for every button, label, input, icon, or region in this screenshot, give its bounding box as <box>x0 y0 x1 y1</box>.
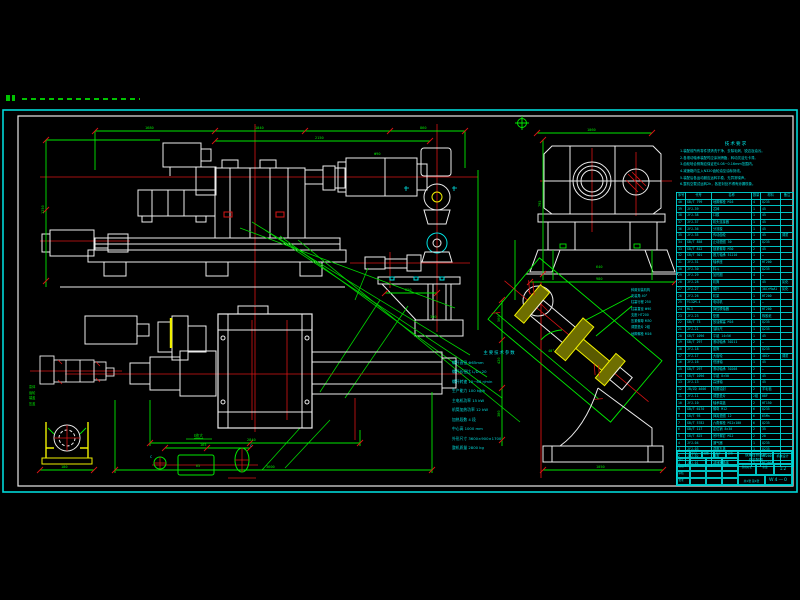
bom-row: 15GB/T 297滚动轴承 302082— <box>677 366 794 373</box>
bom-cell: — <box>761 253 781 260</box>
bom-header-cell: 名称 <box>712 193 752 200</box>
bom-cell: JYJ-29 <box>686 273 712 280</box>
title-block-cell: 处数 <box>702 451 714 458</box>
bom-row: 4JYJ-04通气器1Q235 <box>677 440 794 447</box>
svg-text:40°: 40° <box>548 349 555 353</box>
spec-line: 螺杆直径 Φ65mm <box>452 358 547 367</box>
spec-line: 加热段数 4 段 <box>452 415 547 424</box>
bom-row: 19GB/T 297滚动轴承 302112— <box>677 340 794 347</box>
bom-cell <box>781 400 794 407</box>
bom-row: 23JYJ-23垫圈1橡胶纸 <box>677 313 794 320</box>
bom-cell: JYJ-13 <box>686 380 712 387</box>
bom-cell <box>781 246 794 253</box>
bom-cell: 定位销 8×30 <box>712 427 752 434</box>
bom-cell: 低速轴 <box>712 360 752 367</box>
bom-row: 35JYJ-35传动齿轮145调质 <box>677 233 794 240</box>
company-name: 机械设计 <box>773 451 792 464</box>
svg-text:560: 560 <box>497 316 501 323</box>
svg-text:860: 860 <box>420 126 427 130</box>
bom-cell: GB/T 73 <box>686 320 712 327</box>
bom-cell: 通气器 <box>712 440 752 447</box>
bom-cell: 1 <box>752 206 761 213</box>
bom-cell: Q235 <box>761 420 781 427</box>
bom-cell: 21 <box>677 326 686 333</box>
bom-cell: 11 <box>677 393 686 400</box>
bom-cell: 45 <box>761 226 781 233</box>
sheet-count: 共1张 第1张 <box>738 475 765 485</box>
bom-row: 40GB/T 799地脚螺栓 M164Q235 <box>677 199 794 206</box>
callout-lines: 斜置安装机构安装角 40°柱塞行程 250柱塞直径 Φ90支座 HT200压紧螺… <box>631 287 673 337</box>
bom-row: 13JYJ-13高速轴145 <box>677 380 794 387</box>
bom-cell: 1 <box>752 226 761 233</box>
drawing-number: W4—0 <box>765 475 792 485</box>
machine-base <box>60 238 346 287</box>
bom-row: 32GB/T 301推力轴承 512101— <box>677 253 794 260</box>
bom-cell: GB/T 117 <box>686 427 712 434</box>
bom-cell: JYJ-18 <box>686 346 712 353</box>
dim-ticks <box>43 128 468 296</box>
bom-cell: 25 <box>677 300 686 307</box>
title-block-cell: 标记 <box>690 451 702 458</box>
spec-line: 螺杆长径比 L/D=20 <box>452 367 547 376</box>
bom-cell <box>781 213 794 220</box>
bom-cell: GB/T 825 <box>686 433 712 440</box>
bom-cell: 调质 <box>781 353 794 360</box>
bom-cell: JYJ-10 <box>686 400 712 407</box>
bom-cell: JYJ-17 <box>686 353 712 360</box>
bom-row: 33GB/T 812锁紧螺母 M30245 <box>677 246 794 253</box>
svg-text:1250: 1250 <box>41 205 45 214</box>
bom-cell: 弹簧垫圈 12 <box>712 413 752 420</box>
bom-cell <box>781 340 794 347</box>
bom-cell: 套筒 <box>712 346 752 353</box>
stray-green-mark <box>6 95 10 101</box>
bom-cell: JYJ-04 <box>686 440 712 447</box>
detail-view-label: Ⅰ放大 <box>194 432 203 438</box>
svg-text:2840: 2840 <box>247 438 256 442</box>
gearbox <box>138 160 305 238</box>
bom-cell: 35 <box>761 427 781 434</box>
bom-cell: 高速轴 <box>712 380 752 387</box>
bom-cell: 弹性联轴器 <box>712 306 752 313</box>
bom-cell: JYJ-30 <box>686 266 712 273</box>
bom-cell: — <box>761 366 781 373</box>
bom-cell: 45 <box>761 219 781 226</box>
bom-cell: 滚动轴承 30211 <box>712 340 752 347</box>
bom-cell: 12 <box>677 386 686 393</box>
channel-dim: 65 <box>196 464 200 468</box>
svg-text:1050: 1050 <box>596 465 605 469</box>
bom-cell: Y132M-4 <box>686 300 712 307</box>
bom-cell: 13 <box>677 380 686 387</box>
bom-cell: Q235 <box>761 326 781 333</box>
bom-cell: JYJ-38 <box>686 213 712 220</box>
bom-cell: 45 <box>761 360 781 367</box>
bom-cell <box>781 259 794 266</box>
bom-cell: 1 <box>752 266 761 273</box>
bom-cell: 2 <box>752 246 761 253</box>
sig-header-row: 标记处数签字日期 <box>677 451 738 458</box>
bom-cell <box>781 346 794 353</box>
bom-cell <box>781 266 794 273</box>
vertical-feed-device <box>365 148 463 336</box>
notes-list: 1.装配前所有零件须清洗干净，去除毛刺、锐边及油污。2.各滚动轴承装配时应涂润滑… <box>680 148 792 188</box>
bom-cell: 六角螺栓 M12×100 <box>712 420 752 427</box>
bom-cell <box>781 206 794 213</box>
bom-cell: Q235 <box>761 199 781 206</box>
bom-row: 17JYJ-17大齿轮140Cr调质 <box>677 353 794 360</box>
title-block-cell <box>706 465 722 472</box>
part-label-list: 泵体齿轮端盖压盖 <box>29 385 59 407</box>
bom-cell: 电动机 <box>712 300 752 307</box>
weight-label: 重量 <box>756 464 774 475</box>
part-label: 压盖 <box>29 402 59 408</box>
dimensions-view3 <box>115 392 432 473</box>
bom-row: 31JYJ-31轴承座2HT200 <box>677 259 794 266</box>
bom-row: 38JYJ-38口模145 <box>677 213 794 220</box>
bom-row: 25Y132M-4电动机1— <box>677 300 794 307</box>
bom-cell: 2组 <box>752 393 761 400</box>
bom-row: 36JYJ-36分流梭145 <box>677 226 794 233</box>
title-block-cell <box>706 471 722 478</box>
title-block-cell: 批准 <box>677 478 690 485</box>
bom-cell <box>781 333 794 340</box>
spec-line: 生产能力 100 kg/h <box>452 386 547 395</box>
bom-cell <box>781 366 794 373</box>
sig-row: 校核 <box>677 465 738 472</box>
bom-cell: JYJ-23 <box>686 313 712 320</box>
bom-cell: GB/T 858 <box>686 239 712 246</box>
bom-cell: 1 <box>752 373 761 380</box>
bom-cell: 止动垫圈 30 <box>712 239 752 246</box>
bom-cell: — <box>761 273 781 280</box>
bom-cell: 20 <box>761 433 781 440</box>
bom-cell <box>781 306 794 313</box>
bom-cell: 1 <box>752 279 761 286</box>
bom-cell: 分流梭 <box>712 226 752 233</box>
spec-lines: 螺杆直径 Φ65mm螺杆长径比 L/D=20螺杆转速 10~60 r/min生产… <box>452 358 547 453</box>
bom-cell: 滚动轴承 30208 <box>712 366 752 373</box>
bom-row: 7GB/T 5782六角螺栓 M12×1006Q235 <box>677 420 794 427</box>
bom-cell: 45 <box>761 213 781 220</box>
bom-row: 6GB/T 117定位销 8×30235 <box>677 427 794 434</box>
bom-cell <box>781 199 794 206</box>
bom-cell: JB/ZQ 4606 <box>686 386 712 393</box>
bom-cell: GB/T 812 <box>686 246 712 253</box>
bom-cell <box>781 273 794 280</box>
title-block-cell <box>722 458 738 465</box>
bom-cell: 1 <box>752 353 761 360</box>
bom-cell: HT200 <box>761 293 781 300</box>
bom-cell: HT200 <box>761 306 781 313</box>
bom-cell: 机筒 <box>712 279 752 286</box>
bom-cell <box>781 420 794 427</box>
bom-cell: 垫圈 <box>712 313 752 320</box>
bom-cell: Q235 <box>761 407 781 414</box>
bom-cell <box>781 320 794 327</box>
svg-text:1040: 1040 <box>255 126 264 130</box>
bom-cell: JYJ-27 <box>686 286 712 293</box>
bom-cell: 4 <box>677 440 686 447</box>
bom-cell <box>781 380 794 387</box>
bom-cell: 1 <box>752 213 761 220</box>
bom-cell <box>781 440 794 447</box>
bom-cell <box>781 239 794 246</box>
feeder-motor <box>163 143 216 195</box>
bom-cell: 1 <box>752 333 761 340</box>
bom-row: 27JYJ-27螺杆138CrMoAl氮化 <box>677 286 794 293</box>
bom-cell: 料斗 <box>712 266 752 273</box>
part-label-lines: 泵体齿轮端盖压盖 <box>29 385 59 407</box>
title-block: 标记处数签字日期设计校核审核批准 双螺杆挤压机 总装配图 机械设计 阶段标记 重… <box>676 450 793 486</box>
svg-text:980: 980 <box>596 277 603 281</box>
bom-cell: 2 <box>752 259 761 266</box>
bom-cell <box>781 360 794 367</box>
bom-cell: 38CrMoAl <box>761 286 781 293</box>
svg-text:2150: 2150 <box>315 136 324 140</box>
bom-cell: JYJ-26 <box>686 293 712 300</box>
title-block-cell <box>677 451 690 458</box>
signature-grid: 标记处数签字日期设计校核审核批准 <box>677 451 738 485</box>
bom-cell: 2 <box>752 400 761 407</box>
bom-cell: 23 <box>677 313 686 320</box>
bom-cell: 橡胶纸 <box>761 313 781 320</box>
spec-line: 螺杆转速 10~60 r/min <box>452 377 547 386</box>
bom-cell <box>781 407 794 414</box>
bom-cell <box>781 226 794 233</box>
note-line: 3.齿轮啮合侧隙应保证在0.08~0.16mm范围内。 <box>680 161 792 168</box>
bom-cell: 2 <box>752 386 761 393</box>
bom-cell <box>781 386 794 393</box>
title-block-cell <box>690 471 706 478</box>
bom-cell: HT200 <box>761 259 781 266</box>
bom-cell: JYJ-37 <box>686 219 712 226</box>
bom-header-cell: 备注 <box>781 193 794 200</box>
bom-cell: GB/T 297 <box>686 340 712 347</box>
stage-label: 阶段标记 <box>738 464 756 475</box>
bom-cell: 1 <box>752 326 761 333</box>
bom-cell: 放油螺塞 M16 <box>712 320 752 327</box>
bom-cell: 9 <box>677 407 686 414</box>
bom-cell: 6 <box>677 427 686 434</box>
title-block-cell <box>706 458 722 465</box>
bom-cell: 2 <box>752 433 761 440</box>
title-block-cell <box>690 465 706 472</box>
title-block-cell <box>690 458 706 465</box>
bom-table: 序号代号名称数量材料备注 40GB/T 799地脚螺栓 M164Q23539JY… <box>676 192 794 467</box>
bom-row: 14GB/T 1096平键 8×50145 <box>677 373 794 380</box>
bom-cell <box>781 253 794 260</box>
bom-cell: 45 <box>761 233 781 240</box>
bom-cell: 17 <box>677 353 686 360</box>
dim-ticks2 <box>527 130 678 285</box>
bom-cell: 26 <box>677 293 686 300</box>
bom-cell: 6 <box>752 413 761 420</box>
bom-cell: 65Mn <box>761 413 781 420</box>
bom-cell: Q235 <box>761 346 781 353</box>
bom-cell: 毡圈油封 <box>712 386 752 393</box>
bom-cell: 吊环螺钉 M12 <box>712 433 752 440</box>
parts-table: 序号代号名称数量材料备注 40GB/T 799地脚螺栓 M164Q23539JY… <box>676 192 793 450</box>
note-line: 6.整机空载试运转2h，各密封处不得有渗漏现象。 <box>680 181 792 188</box>
bom-cell: 38 <box>677 213 686 220</box>
title-block-cell <box>706 478 722 485</box>
bom-cell: Q235 <box>761 440 781 447</box>
bom-row: 39JYJ-39芯棒145 <box>677 206 794 213</box>
bom-cell: 45 <box>761 333 781 340</box>
bom-cell: 1 <box>752 286 761 293</box>
bom-cell: 1 <box>752 346 761 353</box>
bom-cell: 加热圈 <box>712 273 752 280</box>
svg-text:C: C <box>250 444 252 448</box>
bom-cell: 芯棒 <box>712 206 752 213</box>
spec-line: 整机质量 2800 kg <box>452 443 547 452</box>
bom-row: 18JYJ-18套筒1Q235 <box>677 346 794 353</box>
title-block-cell <box>722 465 738 472</box>
note-line: 2.各滚动轴承装配时应涂润滑脂，转动灵活无卡滞。 <box>680 155 792 162</box>
bom-cell <box>781 393 794 400</box>
bom-cell: 16 <box>677 360 686 367</box>
scale-value: 1:2 <box>774 464 792 475</box>
note-line: 5.装配后各运动副应运转平稳、无异常噪声。 <box>680 175 792 182</box>
bom-cell: 32 <box>677 253 686 260</box>
bom-cell <box>781 326 794 333</box>
bom-cell: 平键 14×56 <box>712 333 752 340</box>
bom-cell: 39 <box>677 206 686 213</box>
svg-text:250: 250 <box>405 288 412 292</box>
svg-text:300: 300 <box>430 315 437 319</box>
bom-cell: 轴承端盖 <box>712 400 752 407</box>
bom-row: 8GB/T 93弹簧垫圈 12665Mn <box>677 413 794 420</box>
bom-cell <box>781 313 794 320</box>
bom-row: 10JYJ-10轴承端盖2HT150 <box>677 400 794 407</box>
bom-cell: GB/T 297 <box>686 366 712 373</box>
title-block-cell <box>690 478 706 485</box>
title-block-cell: 审核 <box>677 471 690 478</box>
bom-cell: 37 <box>677 219 686 226</box>
svg-text:3600: 3600 <box>266 465 275 469</box>
bom-header-cell: 材料 <box>761 193 781 200</box>
title-block-cell <box>722 478 738 485</box>
bom-cell <box>781 373 794 380</box>
bom-cell: 油标尺 <box>712 326 752 333</box>
callout-line: 地脚螺栓 M16 <box>631 331 673 337</box>
bom-cell: 30 <box>677 266 686 273</box>
sig-row: 批准 <box>677 478 738 485</box>
bom-cell: HL3 <box>686 306 712 313</box>
note-line: 4.减速箱内注入N320齿轮油至油标刻线。 <box>680 168 792 175</box>
bom-row: 20GB/T 1096平键 14×56145 <box>677 333 794 340</box>
spec-list: 主要技术参数 螺杆直径 Φ65mm螺杆长径比 L/D=20螺杆转速 10~60 … <box>452 350 547 453</box>
bom-cell: 口模 <box>712 213 752 220</box>
bom-cell <box>781 219 794 226</box>
bom-cell: 20 <box>677 333 686 340</box>
bom-cell: GB/T 301 <box>686 253 712 260</box>
cad-drawing-canvas: 1680 1040 860 2150 1250 1060 795 640 980… <box>0 0 800 600</box>
bom-row: 22GB/T 73放油螺塞 M161Q235 <box>677 320 794 327</box>
bom-cell: 调整垫片 <box>712 393 752 400</box>
bom-cell: 45 <box>761 246 781 253</box>
callout-list: 斜置安装机构安装角 40°柱塞行程 250柱塞直径 Φ90支座 HT200压紧螺… <box>631 287 673 337</box>
bom-cell: Q235 <box>761 320 781 327</box>
bom-row: 24HL3弹性联轴器1HT200 <box>677 306 794 313</box>
bom-row: 12JB/ZQ 4606毡圈油封2羊毛毡 <box>677 386 794 393</box>
bom-cell: 6 <box>752 407 761 414</box>
bom-cell: 2 <box>752 239 761 246</box>
bom-cell: 传动齿轮 <box>712 233 752 240</box>
bom-cell: 08F <box>761 393 781 400</box>
bom-cell: 1 <box>752 313 761 320</box>
centerlines <box>40 124 672 332</box>
bom-cell: Q235 <box>761 266 781 273</box>
bom-cell: GB/T 6170 <box>686 407 712 414</box>
bom-cell: 40 <box>677 199 686 206</box>
bom-cell: JYJ-36 <box>686 226 712 233</box>
centerlines3 <box>30 306 462 478</box>
bom-cell: JYJ-28 <box>686 279 712 286</box>
bom-row: 29JYJ-29加热圈4— <box>677 273 794 280</box>
bom-cell: 锁紧螺母 M30 <box>712 246 752 253</box>
bom-header-cell: 代号 <box>686 193 712 200</box>
bom-cell: 羊毛毡 <box>761 386 781 393</box>
bom-header-row: 序号代号名称数量材料备注 <box>677 193 794 200</box>
svg-text:640: 640 <box>596 265 603 269</box>
dimensions-view2 <box>530 133 675 282</box>
bom-cell: 28 <box>677 279 686 286</box>
bom-cell: 推力轴承 51210 <box>712 253 752 260</box>
bom-cell: 34 <box>677 239 686 246</box>
bom-cell: 1 <box>752 306 761 313</box>
bom-cell: 22 <box>677 320 686 327</box>
bom-cell: 1 <box>752 320 761 327</box>
svg-text:1060: 1060 <box>587 128 596 132</box>
view-lower-section <box>30 306 462 478</box>
bom-row: 9GB/T 6170螺母 M126Q235 <box>677 407 794 414</box>
bom-cell: GB/T 1096 <box>686 333 712 340</box>
bom-cell: 平键 8×50 <box>712 373 752 380</box>
bom-cell: 14 <box>677 373 686 380</box>
view-housing-front <box>526 130 678 285</box>
drawing-title: 双螺杆挤压机 总装配图 <box>738 451 773 464</box>
bom-cell: 36 <box>677 226 686 233</box>
sig-row: 设计 <box>677 458 738 465</box>
bom-cell: 大齿轮 <box>712 353 752 360</box>
bom-cell: JYJ-16 <box>686 360 712 367</box>
bom-cell <box>781 427 794 434</box>
svg-text:Φ90: Φ90 <box>374 152 381 156</box>
bom-cell: 1 <box>752 219 761 226</box>
spec-line: 主电机功率 15 kW <box>452 396 547 405</box>
bom-cell: 1 <box>752 293 761 300</box>
notes-title: 技术要求 <box>680 141 792 147</box>
bom-cell: 调质 <box>781 233 794 240</box>
note-line: 1.装配前所有零件须清洗干净，去除毛刺、锐边及油污。 <box>680 148 792 155</box>
bom-cell: 45 <box>761 279 781 286</box>
spec-line: 中心高 1000 mm <box>452 424 547 433</box>
bom-cell: 24 <box>677 306 686 313</box>
bom-cell: 机架 <box>712 293 752 300</box>
bom-cell: Q235 <box>761 239 781 246</box>
bom-cell: 2 <box>752 427 761 434</box>
bom-cell: JYJ-11 <box>686 393 712 400</box>
svg-text:795: 795 <box>538 201 542 208</box>
bom-header-cell: 序号 <box>677 193 686 200</box>
bom-cell: HT150 <box>761 400 781 407</box>
bom-cell <box>781 413 794 420</box>
svg-text:180: 180 <box>61 465 68 469</box>
bom-row: 26JYJ-26机架1HT200 <box>677 293 794 300</box>
bom-cell: GB/T 5782 <box>686 420 712 427</box>
